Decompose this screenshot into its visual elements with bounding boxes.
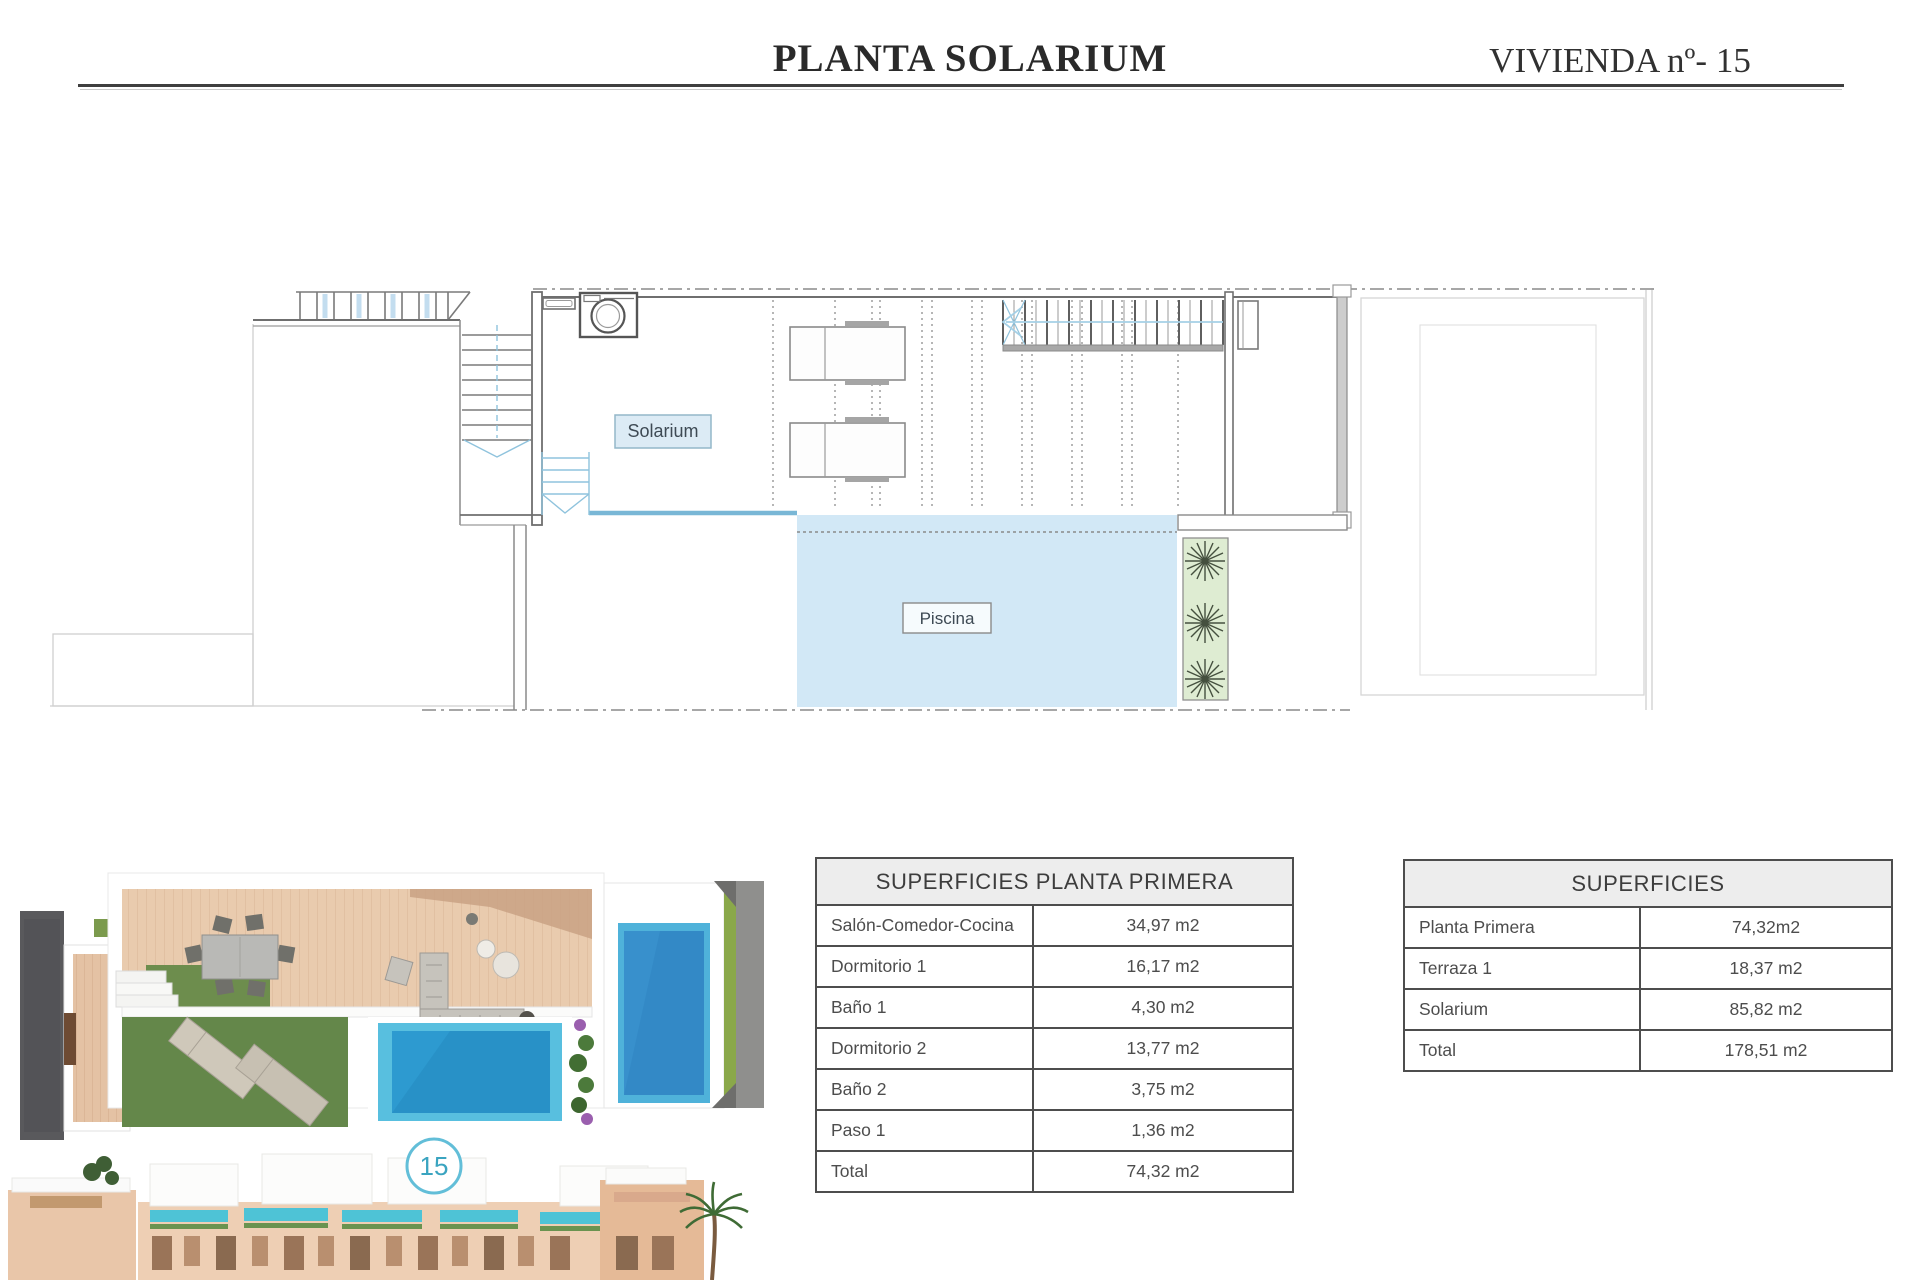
left-terrace-wall — [253, 320, 460, 326]
room-name: Total — [816, 1151, 1033, 1192]
room-name: Planta Primera — [1404, 907, 1640, 948]
room-name: Terraza 1 — [1404, 948, 1640, 989]
planter-strip — [1183, 538, 1228, 700]
brochure-page: PLANTA SOLARIUM VIVIENDA nº- 15 — [0, 0, 1920, 1280]
neighbor-pool-terrace — [604, 881, 764, 1108]
table-title: SUPERFICIES — [1404, 860, 1892, 907]
room-name: Baño 2 — [816, 1069, 1033, 1110]
header-rule — [78, 84, 1844, 87]
neighbor-terrace-left-outline — [50, 324, 514, 706]
room-area: 34,97 m2 — [1033, 905, 1293, 946]
page-title: PLANTA SOLARIUM — [620, 36, 1320, 81]
room-name: Paso 1 — [816, 1110, 1033, 1151]
table-row: Dormitorio 1 16,17 m2 — [816, 946, 1293, 987]
building-elevation-render: 15 — [8, 1139, 748, 1280]
piscina-label-text: Piscina — [920, 609, 975, 628]
palm-icon — [1185, 659, 1225, 699]
surface-table-general: SUPERFICIES Planta Primera 74,32m2 Terra… — [1403, 859, 1893, 1072]
room-area: 1,36 m2 — [1033, 1110, 1293, 1151]
floor-plan: Solarium — [40, 280, 1660, 730]
table-row: Paso 1 1,36 m2 — [816, 1110, 1293, 1151]
room-area: 13,77 m2 — [1033, 1028, 1293, 1069]
room-area: 16,17 m2 — [1033, 946, 1293, 987]
room-name: Solarium — [1404, 989, 1640, 1030]
roof-boxes — [150, 1154, 648, 1206]
room-area: 178,51 m2 — [1640, 1030, 1892, 1071]
stairs-main-shaft — [460, 292, 542, 710]
main-roof-terrace — [108, 873, 604, 1127]
room-area: 18,37 m2 — [1640, 948, 1892, 989]
laundry-area — [543, 293, 637, 337]
room-area: 74,32m2 — [1640, 907, 1892, 948]
stairs-to-pool-deck — [542, 452, 589, 515]
stair-side-wall — [1225, 292, 1258, 525]
room-name: Total — [1404, 1030, 1640, 1071]
room-name: Dormitorio 1 — [816, 946, 1033, 987]
table-row: Total 74,32 m2 — [816, 1151, 1293, 1192]
palm-icon — [1185, 541, 1225, 581]
table-row: Total 178,51 m2 — [1404, 1030, 1892, 1071]
stairs-upper-left — [296, 292, 470, 320]
render-3d-plan — [20, 853, 765, 1140]
stairs-top-right — [1003, 300, 1223, 351]
neighbor-terrace-right-outline — [1361, 290, 1652, 710]
table-row: Solarium 85,82 m2 — [1404, 989, 1892, 1030]
table-row: Terraza 1 18,37 m2 — [1404, 948, 1892, 989]
room-name: Dormitorio 2 — [816, 1028, 1033, 1069]
unit-badge: 15 — [407, 1139, 461, 1193]
table-row: Baño 2 3,75 m2 — [816, 1069, 1293, 1110]
solarium-label-text: Solarium — [627, 421, 698, 441]
room-name: Salón-Comedor-Cocina — [816, 905, 1033, 946]
solarium-label: Solarium — [615, 415, 711, 448]
piscina-label: Piscina — [903, 603, 991, 633]
room-name: Baño 1 — [816, 987, 1033, 1028]
table-title: SUPERFICIES PLANTA PRIMERA — [816, 858, 1293, 905]
room-area: 85,82 m2 — [1640, 989, 1892, 1030]
room-area: 3,75 m2 — [1033, 1069, 1293, 1110]
palm-icon — [1185, 603, 1225, 643]
surface-table-planta-primera: SUPERFICIES PLANTA PRIMERA Salón-Comedor… — [815, 857, 1294, 1193]
room-area: 74,32 m2 — [1033, 1151, 1293, 1192]
table-row: Salón-Comedor-Cocina 34,97 m2 — [816, 905, 1293, 946]
pool-area — [589, 513, 1177, 707]
unit-badge-number: 15 — [420, 1151, 449, 1181]
building-elevation: 15 — [0, 1128, 760, 1280]
unit-title: VIVIENDA nº- 15 — [1440, 41, 1800, 81]
table-row: Planta Primera 74,32m2 — [1404, 907, 1892, 948]
sun-loungers-plan — [790, 321, 905, 482]
room-area: 4,30 m2 — [1033, 987, 1293, 1028]
table-row: Dormitorio 2 13,77 m2 — [816, 1028, 1293, 1069]
main-pool-3d — [368, 1017, 572, 1127]
table-row: Baño 1 4,30 m2 — [816, 987, 1293, 1028]
